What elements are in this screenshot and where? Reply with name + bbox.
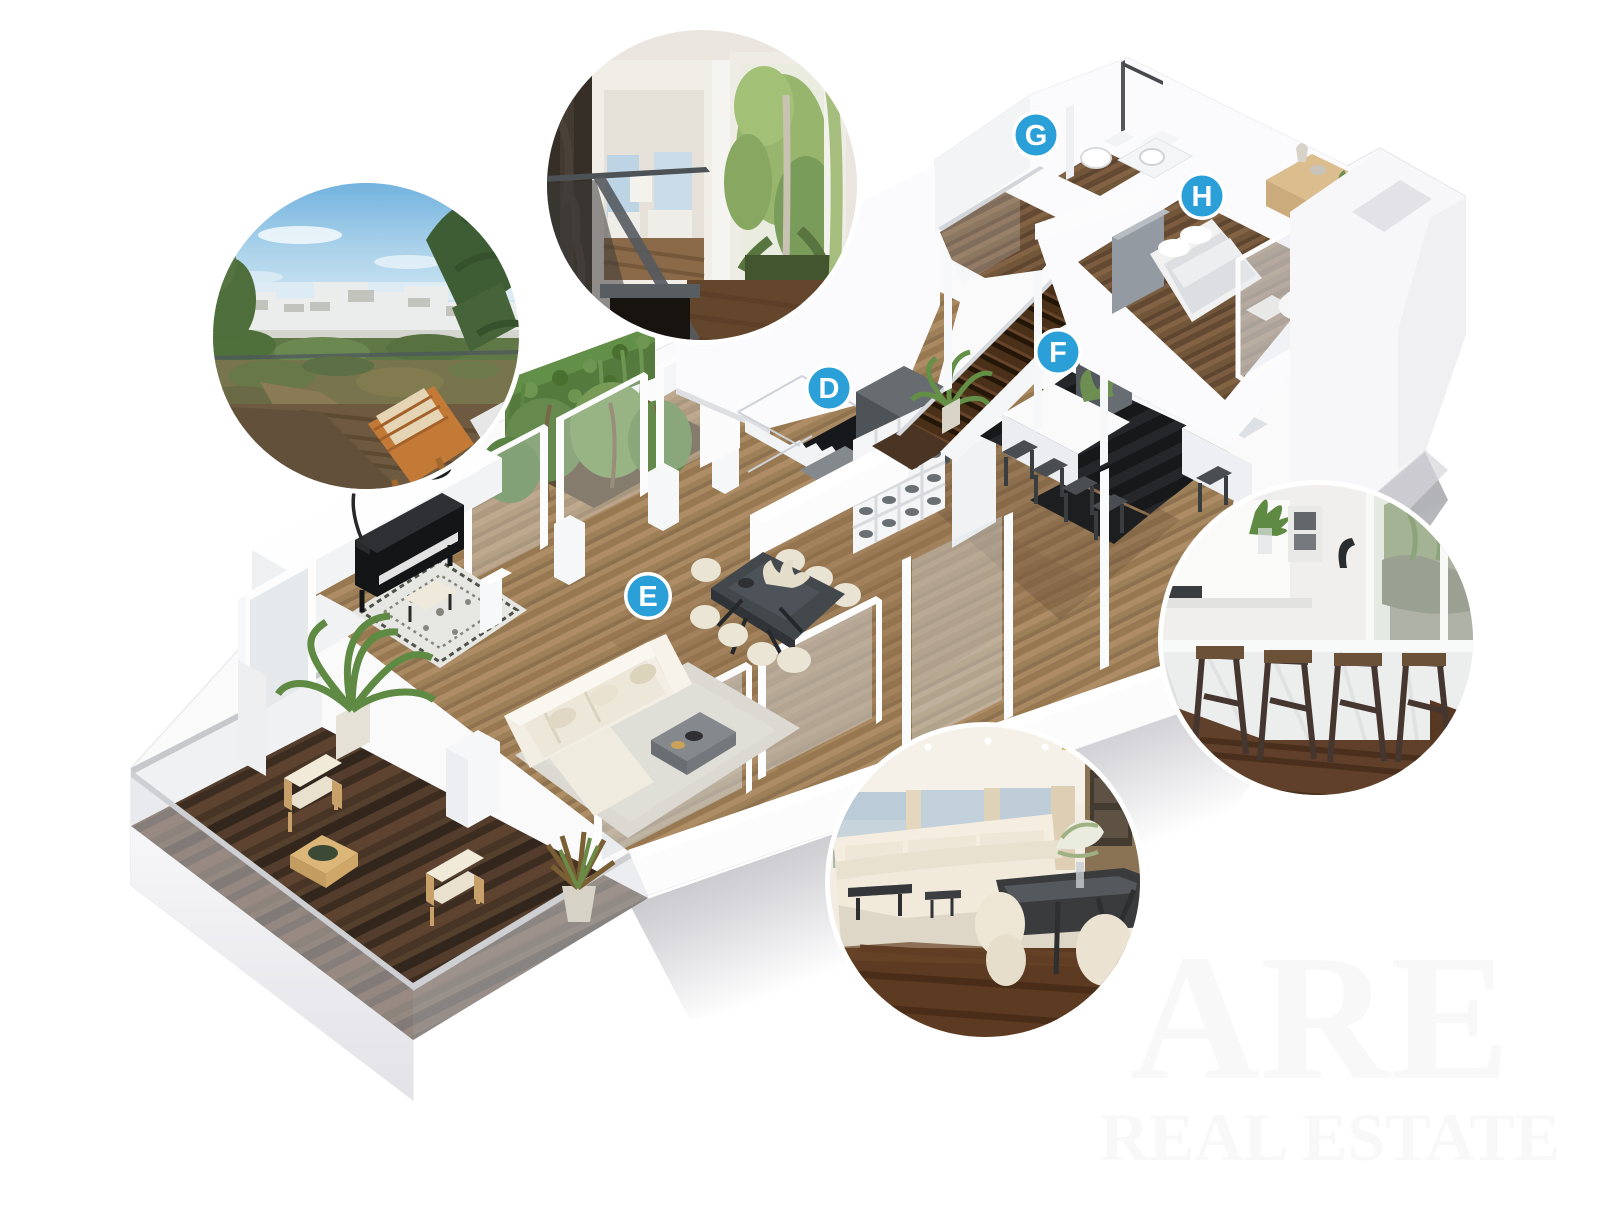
svg-text:F: F (1049, 337, 1067, 369)
svg-text:D: D (819, 373, 840, 405)
svg-text:ARE: ARE (1130, 918, 1510, 1117)
svg-text:E: E (638, 581, 657, 613)
svg-text:REAL ESTATE: REAL ESTATE (1100, 1099, 1560, 1175)
svg-text:G: G (1025, 120, 1048, 152)
svg-text:H: H (1192, 181, 1213, 213)
